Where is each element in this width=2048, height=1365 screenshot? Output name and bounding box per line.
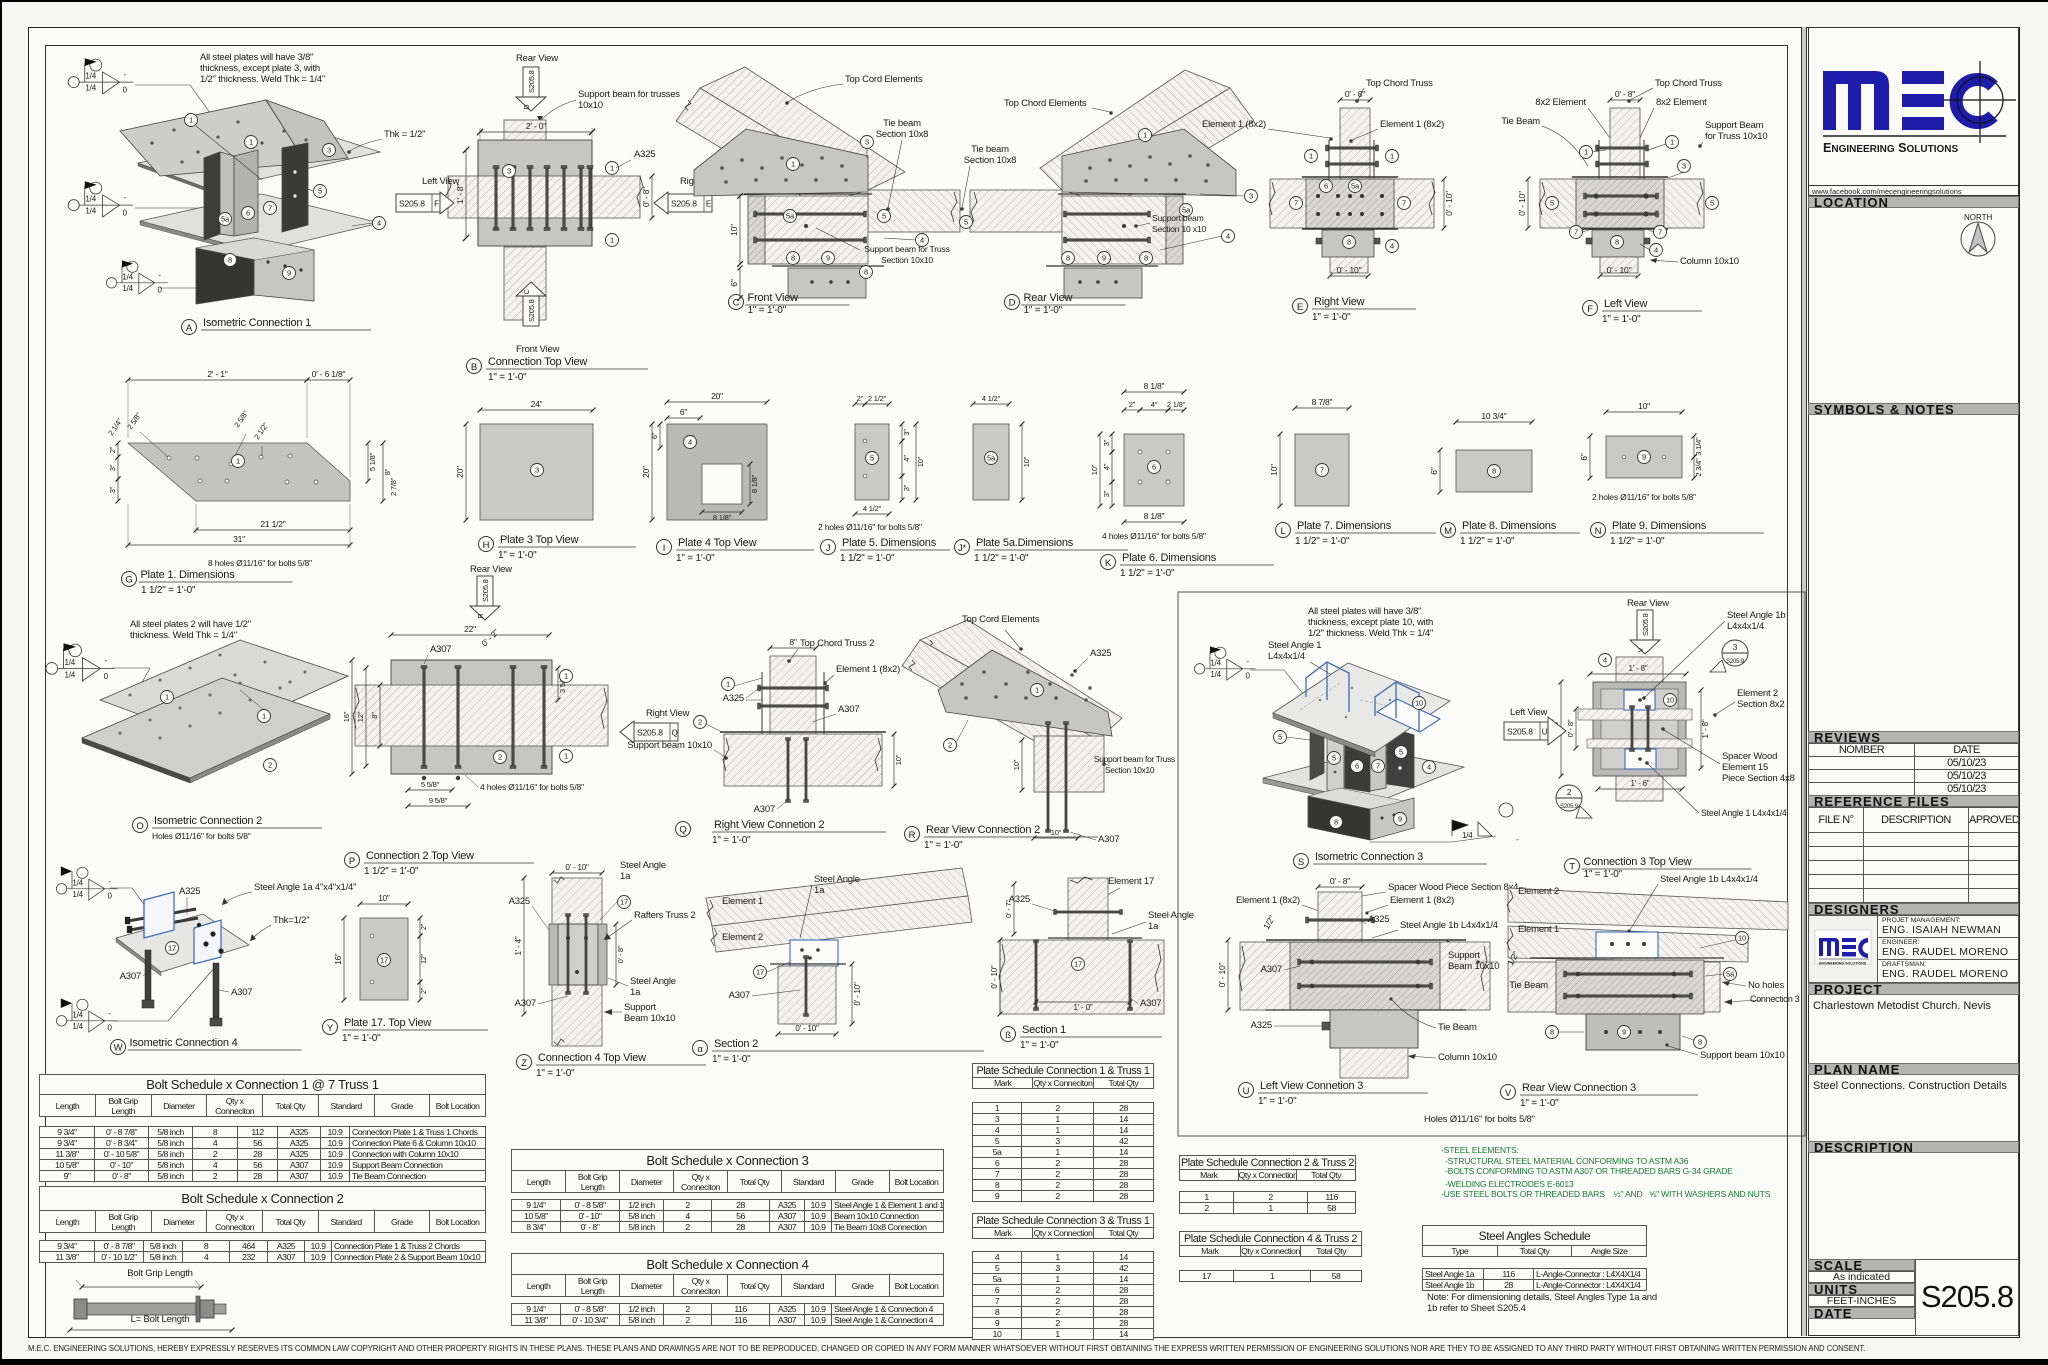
svg-text:2' - 0": 2' - 0" xyxy=(526,121,546,131)
svg-text:8 7/8": 8 7/8" xyxy=(1312,397,1333,407)
svg-text:3: 3 xyxy=(1682,162,1686,171)
svg-text:9 5/8": 9 5/8" xyxy=(429,796,448,805)
svg-text:1/4: 1/4 xyxy=(65,670,76,679)
svg-text:Section 8x2: Section 8x2 xyxy=(1737,699,1784,710)
svg-text:Front View: Front View xyxy=(516,344,560,355)
svg-text:L: L xyxy=(1280,526,1285,537)
svg-text:2 holes Ø11/16" for bolts 5/8": 2 holes Ø11/16" for bolts 5/8" xyxy=(1592,492,1696,502)
svg-text:Top Chord Truss 2: Top Chord Truss 2 xyxy=(800,638,874,649)
svg-text:1" = 1'-0": 1" = 1'-0" xyxy=(536,1068,575,1079)
svg-text:C: C xyxy=(733,298,740,309)
svg-text:8: 8 xyxy=(1615,238,1619,247)
svg-text:S205.8: S205.8 xyxy=(1507,727,1533,737)
svg-text:Steel Angle 1b L4x4x1/4: Steel Angle 1b L4x4x1/4 xyxy=(1400,920,1498,931)
svg-text:Rear View: Rear View xyxy=(470,564,512,575)
svg-text:8": 8" xyxy=(383,468,392,475)
svg-text:S205.8: S205.8 xyxy=(481,579,490,602)
svg-text:F: F xyxy=(434,200,439,209)
svg-text:5a: 5a xyxy=(1351,182,1360,191)
svg-text:Support beam: Support beam xyxy=(1152,213,1204,223)
svg-text:Spacer Wood Piece Section 8x4: Spacer Wood Piece Section 8x4 xyxy=(1388,882,1518,893)
svg-text:2 1/2": 2 1/2" xyxy=(868,394,887,403)
svg-text:V: V xyxy=(1505,1088,1512,1099)
svg-text:0' - 8": 0' - 8" xyxy=(1330,876,1350,886)
svg-text:1: 1 xyxy=(1309,152,1313,161)
svg-text:8: 8 xyxy=(1066,254,1070,263)
svg-text:6: 6 xyxy=(1152,463,1156,472)
svg-text:5: 5 xyxy=(1278,733,1282,742)
svg-text:1/4: 1/4 xyxy=(122,284,133,293)
svg-text:31": 31" xyxy=(233,534,245,544)
svg-text:Tie Beam: Tie Beam xyxy=(1501,116,1540,127)
svg-text:V: V xyxy=(1638,647,1645,652)
svg-text:L4x4x1/4: L4x4x1/4 xyxy=(1268,651,1305,662)
svg-text:17: 17 xyxy=(756,968,764,977)
svg-text:N: N xyxy=(1595,526,1602,537)
svg-text:A325: A325 xyxy=(1251,1020,1272,1031)
svg-text:1: 1 xyxy=(726,680,730,689)
svg-text:A307: A307 xyxy=(729,990,750,1001)
svg-text:E: E xyxy=(706,200,711,209)
svg-text:2": 2" xyxy=(421,923,428,930)
svg-text:0' - 10": 0' - 10" xyxy=(795,1024,819,1033)
svg-text:Connection 3: Connection 3 xyxy=(1750,994,1800,1004)
svg-text:A307: A307 xyxy=(1098,834,1119,845)
svg-text:8x2 Element: 8x2 Element xyxy=(1656,97,1707,108)
svg-text:6: 6 xyxy=(246,209,250,218)
svg-text:6": 6" xyxy=(1429,467,1439,475)
svg-text:7: 7 xyxy=(1376,762,1380,771)
svg-text:0: 0 xyxy=(107,1023,112,1032)
svg-text:1: 1 xyxy=(262,712,266,721)
svg-text:3: 3 xyxy=(327,146,331,155)
svg-text:9: 9 xyxy=(1102,254,1106,263)
svg-text:A307: A307 xyxy=(1140,998,1161,1009)
svg-text:4: 4 xyxy=(1654,246,1658,255)
svg-text:1: 1 xyxy=(236,457,240,466)
svg-text:Section 10x8: Section 10x8 xyxy=(876,129,929,140)
svg-text:2 1/4": 2 1/4" xyxy=(106,417,124,437)
svg-text:0' - 10": 0' - 10" xyxy=(1217,962,1227,987)
svg-text:8: 8 xyxy=(791,254,795,263)
svg-text:3: 3 xyxy=(1733,643,1738,652)
svg-text:Isometric Connection 3: Isometric Connection 3 xyxy=(1315,851,1423,863)
svg-text:5: 5 xyxy=(964,218,968,227)
svg-text:0' - 10": 0' - 10" xyxy=(1444,191,1454,216)
svg-text:1" = 1'-0": 1" = 1'-0" xyxy=(342,1033,381,1044)
svg-text:Top Chord Truss: Top Chord Truss xyxy=(1655,78,1722,89)
svg-text:S205.9: S205.9 xyxy=(1726,659,1745,665)
svg-text:1/4: 1/4 xyxy=(1210,670,1221,679)
svg-text:20": 20" xyxy=(711,391,723,401)
svg-text:Top Chord Truss: Top Chord Truss xyxy=(1366,78,1433,89)
svg-text:2": 2" xyxy=(421,987,428,994)
svg-text:Thk=1/2": Thk=1/2" xyxy=(273,915,309,926)
svg-text:1" = 1'-0": 1" = 1'-0" xyxy=(924,840,963,851)
svg-text:0' - 8": 0' - 8" xyxy=(641,187,651,207)
svg-text:21 1/2": 21 1/2" xyxy=(260,519,285,529)
svg-text:Plate 17. Top View: Plate 17. Top View xyxy=(344,1017,431,1029)
svg-text:3": 3" xyxy=(902,429,911,436)
svg-text:A307: A307 xyxy=(120,971,141,982)
svg-text:1 1/2" = 1'-0": 1 1/2" = 1'-0" xyxy=(1295,536,1350,547)
svg-text:2": 2" xyxy=(108,446,117,453)
svg-text:10": 10" xyxy=(1022,456,1031,467)
svg-text:1: 1 xyxy=(564,752,568,761)
svg-text:U: U xyxy=(1243,1086,1250,1097)
svg-text:1" = 1'-0": 1" = 1'-0" xyxy=(498,550,537,561)
svg-text:7: 7 xyxy=(1658,228,1662,237)
svg-text:16": 16" xyxy=(342,711,351,722)
svg-text:L= Bolt Length: L= Bolt Length xyxy=(131,1314,190,1325)
svg-text:8: 8 xyxy=(1347,238,1351,247)
svg-text:3": 3" xyxy=(108,486,117,493)
svg-text:10": 10" xyxy=(1012,759,1021,770)
svg-text:4: 4 xyxy=(377,219,381,228)
svg-text:2' - 1": 2' - 1" xyxy=(207,369,227,379)
svg-text:Support beam for trusses: Support beam for trusses xyxy=(578,89,680,100)
svg-text:10: 10 xyxy=(1666,696,1674,705)
svg-text:4: 4 xyxy=(1427,763,1431,772)
svg-text:α: α xyxy=(697,1044,703,1055)
svg-text:3 1/4": 3 1/4" xyxy=(1694,437,1703,456)
svg-text:S205.8: S205.8 xyxy=(527,299,536,322)
svg-text:5a: 5a xyxy=(987,454,996,463)
svg-text:7: 7 xyxy=(1402,199,1406,208)
svg-text:9: 9 xyxy=(287,269,291,278)
svg-text:Steel Angle: Steel Angle xyxy=(1148,910,1194,921)
svg-text:Element 1 (8x2): Element 1 (8x2) xyxy=(836,664,900,675)
svg-text:Section 10 x10: Section 10 x10 xyxy=(1152,224,1206,234)
svg-text:R: R xyxy=(478,613,485,618)
svg-text:17: 17 xyxy=(168,944,176,953)
svg-text:thickness, except plate 3, wit: thickness, except plate 3, with xyxy=(200,63,320,74)
svg-text:Right View Connetion 2: Right View Connetion 2 xyxy=(714,819,824,831)
svg-text:4 1/2": 4 1/2" xyxy=(982,394,1001,403)
svg-text:10": 10" xyxy=(894,754,903,765)
svg-text:A307: A307 xyxy=(754,804,775,815)
svg-text:1a: 1a xyxy=(630,987,641,998)
svg-text:Holes Ø11/16" for bolts 5/8": Holes Ø11/16" for bolts 5/8" xyxy=(1424,1114,1535,1125)
svg-text:5: 5 xyxy=(870,454,874,463)
svg-text:Support beam for Truss: Support beam for Truss xyxy=(864,244,949,254)
svg-text:8: 8 xyxy=(1334,818,1338,827)
svg-text:1" = 1'-0": 1" = 1'-0" xyxy=(1602,314,1641,325)
svg-text:All steel plates will have 3/8: All steel plates will have 3/8" xyxy=(200,52,313,63)
svg-text:5: 5 xyxy=(1332,754,1336,763)
svg-text:10: 10 xyxy=(1415,699,1423,708)
svg-text:Beam 10x10: Beam 10x10 xyxy=(1448,961,1499,972)
svg-text:1' - 8": 1' - 8" xyxy=(1629,664,1648,673)
svg-text:Rear View: Rear View xyxy=(1024,292,1073,304)
svg-text:Connection 4 Top View: Connection 4 Top View xyxy=(538,1052,646,1064)
svg-text:D: D xyxy=(524,104,531,109)
svg-text:C: C xyxy=(524,289,531,294)
svg-text:6: 6 xyxy=(1355,762,1359,771)
svg-text:0' - 10": 0' - 10" xyxy=(565,863,589,872)
svg-text:S205.8: S205.8 xyxy=(527,70,536,93)
svg-text:1/4: 1/4 xyxy=(72,879,83,888)
svg-text:0: 0 xyxy=(123,85,128,94)
svg-text:Beam 10x10: Beam 10x10 xyxy=(624,1013,675,1024)
svg-text:16": 16" xyxy=(334,953,343,964)
svg-text:10": 10" xyxy=(1269,464,1279,476)
svg-text:4: 4 xyxy=(1226,232,1230,241)
svg-text:5a: 5a xyxy=(1726,970,1735,979)
svg-text:1" = 1'-0": 1" = 1'-0" xyxy=(712,1054,751,1065)
svg-text:Connection 2 Top View: Connection 2 Top View xyxy=(366,850,474,862)
svg-text:Element 2: Element 2 xyxy=(722,932,763,943)
svg-text:2": 2" xyxy=(857,394,864,403)
svg-text:0' - 8": 0' - 8" xyxy=(1615,89,1635,99)
svg-text:5a: 5a xyxy=(221,215,230,224)
svg-text:Tie Beam: Tie Beam xyxy=(1438,1022,1477,1033)
svg-text:3: 3 xyxy=(1249,192,1253,201)
svg-text:A325: A325 xyxy=(1090,648,1111,659)
svg-text:1 1/2" = 1'-0": 1 1/2" = 1'-0" xyxy=(840,553,895,564)
svg-text:10": 10" xyxy=(1638,401,1650,411)
svg-text:S205.8: S205.8 xyxy=(1641,613,1650,636)
svg-text:Section 10x10: Section 10x10 xyxy=(881,255,933,265)
svg-text:Connection Top View: Connection Top View xyxy=(488,356,587,368)
svg-text:A325: A325 xyxy=(723,693,744,704)
svg-text:Element 1 (8x2): Element 1 (8x2) xyxy=(1390,895,1454,906)
svg-text:4": 4" xyxy=(1151,400,1158,409)
svg-text:0: 0 xyxy=(157,285,162,294)
svg-text:8": 8" xyxy=(370,712,379,719)
svg-text:0' - 8": 0' - 8" xyxy=(1566,719,1575,737)
svg-text:Plate 6. Dimensions: Plate 6. Dimensions xyxy=(1122,552,1217,564)
svg-text:A307: A307 xyxy=(231,987,252,998)
svg-text:-: - xyxy=(105,656,108,665)
svg-text:2: 2 xyxy=(268,761,272,770)
svg-text:Element 1 (8x2): Element 1 (8x2) xyxy=(1380,119,1444,130)
svg-text:4: 4 xyxy=(688,438,692,447)
svg-text:Top Cord Elements: Top Cord Elements xyxy=(962,614,1040,625)
svg-text:7: 7 xyxy=(1294,199,1298,208)
svg-text:Element 1: Element 1 xyxy=(1518,924,1559,935)
svg-text:1/4: 1/4 xyxy=(85,195,96,204)
svg-text:8: 8 xyxy=(1698,1038,1702,1047)
svg-text:8 1/8": 8 1/8" xyxy=(713,513,732,522)
svg-text:Front View: Front View xyxy=(748,292,799,304)
svg-text:9: 9 xyxy=(1398,815,1402,824)
svg-text:Support beam for Truss: Support beam for Truss xyxy=(1094,754,1175,764)
svg-text:10": 10" xyxy=(916,456,925,467)
svg-text:1/4: 1/4 xyxy=(72,890,83,899)
svg-text:1/4: 1/4 xyxy=(65,658,76,667)
svg-text:8: 8 xyxy=(864,268,868,277)
svg-text:O: O xyxy=(136,821,143,832)
svg-text:S205.9: S205.9 xyxy=(1560,804,1579,810)
svg-text:J*: J* xyxy=(958,543,967,554)
svg-text:1: 1 xyxy=(1390,152,1394,161)
svg-text:1: 1 xyxy=(564,672,568,681)
svg-text:8 1/8": 8 1/8" xyxy=(1144,381,1165,391)
svg-text:1/4: 1/4 xyxy=(1462,831,1473,840)
svg-text:6: 6 xyxy=(1324,182,1328,191)
svg-text:1a: 1a xyxy=(620,871,631,882)
svg-text:E: E xyxy=(1297,302,1303,313)
svg-text:No holes: No holes xyxy=(1748,980,1784,991)
svg-text:-: - xyxy=(158,271,161,280)
svg-text:8x2 Element: 8x2 Element xyxy=(1535,97,1586,108)
svg-text:1: 1 xyxy=(791,160,795,169)
svg-text:Tie Beam: Tie Beam xyxy=(1509,980,1548,991)
svg-text:1/4: 1/4 xyxy=(85,72,96,81)
svg-text:1' - 0": 1' - 0" xyxy=(1074,1003,1093,1012)
svg-text:1: 1 xyxy=(1670,138,1674,147)
svg-text:Thk = 1/2": Thk = 1/2" xyxy=(384,129,425,140)
svg-text:10": 10" xyxy=(729,224,739,236)
svg-text:Top Cord Elements: Top Cord Elements xyxy=(845,74,923,85)
svg-text:8 1/8": 8 1/8" xyxy=(1144,511,1165,521)
svg-text:0' - 10": 0' - 10" xyxy=(1337,265,1362,275)
svg-text:0' - 10": 0' - 10" xyxy=(1607,265,1632,275)
svg-text:6": 6" xyxy=(650,432,659,439)
svg-text:3: 3 xyxy=(507,167,511,176)
svg-text:Steel Angle: Steel Angle xyxy=(620,860,666,871)
svg-text:1/2" thickness. Weld Thk = 1/4: 1/2" thickness. Weld Thk = 1/4" xyxy=(200,74,325,85)
svg-text:All steel plates will have 3/8: All steel plates will have 3/8" xyxy=(1308,606,1421,617)
svg-text:17: 17 xyxy=(1074,960,1082,969)
svg-text:20": 20" xyxy=(641,466,651,478)
svg-text:0: 0 xyxy=(104,672,109,681)
svg-text:1' - 4": 1' - 4" xyxy=(514,936,523,955)
svg-text:Column 10x10: Column 10x10 xyxy=(1438,1052,1497,1063)
svg-text:Support: Support xyxy=(1448,950,1480,961)
svg-text:12": 12" xyxy=(421,953,428,963)
svg-text:1" = 1'-0": 1" = 1'-0" xyxy=(1258,1096,1297,1107)
svg-text:Element 1 (8x2): Element 1 (8x2) xyxy=(1236,895,1300,906)
svg-text:W: W xyxy=(114,1043,123,1054)
svg-text:1" = 1'-0": 1" = 1'-0" xyxy=(1520,1098,1559,1109)
svg-text:F: F xyxy=(1587,304,1593,315)
svg-text:9: 9 xyxy=(1642,453,1646,462)
svg-text:S205.8: S205.8 xyxy=(671,199,697,209)
svg-text:2 5/8": 2 5/8" xyxy=(232,409,250,429)
svg-text:2: 2 xyxy=(698,718,702,727)
svg-text:Y: Y xyxy=(327,1023,334,1034)
svg-text:12": 12" xyxy=(356,711,365,722)
svg-text:thickness. Weld Thk = 1/4": thickness. Weld Thk = 1/4" xyxy=(130,630,237,641)
svg-text:Section 10x10: Section 10x10 xyxy=(1105,765,1155,775)
svg-text:1a: 1a xyxy=(1148,921,1159,932)
svg-text:10 3/4": 10 3/4" xyxy=(1481,411,1506,421)
svg-text:0' - 10": 0' - 10" xyxy=(1517,191,1527,216)
svg-text:A325: A325 xyxy=(179,886,200,897)
svg-text:1a: 1a xyxy=(814,885,825,896)
svg-text:Support beam 10x10: Support beam 10x10 xyxy=(1700,1050,1785,1061)
svg-text:Plate 1. Dimensions: Plate 1. Dimensions xyxy=(141,569,236,581)
svg-text:-: - xyxy=(123,193,126,202)
svg-text:1 1/2" = 1'-0": 1 1/2" = 1'-0" xyxy=(974,553,1029,564)
svg-text:I: I xyxy=(663,543,665,554)
svg-text:2 3/4": 2 3/4" xyxy=(1694,458,1703,477)
svg-text:4": 4" xyxy=(1102,463,1111,470)
svg-text:4: 4 xyxy=(1603,656,1607,665)
svg-text:Plate 8. Dimensions: Plate 8. Dimensions xyxy=(1462,520,1557,532)
svg-text:0' - 10": 0' - 10" xyxy=(990,965,999,989)
svg-text:1 1/2" = 1'-0": 1 1/2" = 1'-0" xyxy=(364,866,419,877)
svg-text:5 5/8": 5 5/8" xyxy=(421,780,440,789)
svg-text:1: 1 xyxy=(610,164,614,173)
svg-text:1' - 6": 1' - 6" xyxy=(1631,779,1650,788)
svg-text:1/4: 1/4 xyxy=(85,84,96,93)
svg-text:3": 3" xyxy=(902,484,911,491)
svg-text:1: 1 xyxy=(165,693,169,702)
svg-text:8: 8 xyxy=(1492,467,1496,476)
svg-text:Left View: Left View xyxy=(1604,298,1648,310)
svg-text:A307: A307 xyxy=(1261,964,1282,975)
svg-text:Steel Angle 1 L4x4x1/4: Steel Angle 1 L4x4x1/4 xyxy=(1701,808,1787,818)
svg-text:A: A xyxy=(186,323,193,334)
svg-text:1" = 1'-0": 1" = 1'-0" xyxy=(1020,1040,1059,1051)
svg-text:Steel Angle: Steel Angle xyxy=(630,976,676,987)
svg-text:9: 9 xyxy=(1622,1028,1626,1037)
svg-text:8": 8" xyxy=(789,637,797,647)
svg-text:Element 1: Element 1 xyxy=(722,896,763,907)
svg-text:Left View: Left View xyxy=(1510,707,1547,718)
svg-text:24": 24" xyxy=(531,399,543,409)
svg-text:2 1/8": 2 1/8" xyxy=(1167,400,1186,409)
svg-text:A325: A325 xyxy=(634,149,655,160)
svg-text:A307: A307 xyxy=(515,998,536,1009)
svg-text:0' - 6 1/8": 0' - 6 1/8" xyxy=(312,369,346,379)
svg-text:0: 0 xyxy=(123,208,128,217)
svg-text:6": 6" xyxy=(680,407,688,417)
svg-text:Support Beam: Support Beam xyxy=(1705,120,1764,131)
svg-text:thickness, except plate 10, wi: thickness, except plate 10, with xyxy=(1308,617,1433,628)
svg-text:7: 7 xyxy=(1574,228,1578,237)
svg-text:Isometric Connection 4: Isometric Connection 4 xyxy=(130,1037,238,1049)
svg-text:0' - 2": 0' - 2" xyxy=(479,627,501,649)
svg-text:8: 8 xyxy=(228,256,232,265)
svg-text:1" = 1'-0": 1" = 1'-0" xyxy=(712,835,751,846)
svg-text:U: U xyxy=(1542,728,1548,737)
svg-text:Section 10x8: Section 10x8 xyxy=(964,155,1017,166)
svg-text:Steel Angle 1b L4x4x1/4: Steel Angle 1b L4x4x1/4 xyxy=(1660,874,1758,885)
svg-text:17: 17 xyxy=(380,956,388,965)
svg-text:0' - 8": 0' - 8" xyxy=(1345,89,1365,99)
svg-text:H: H xyxy=(483,540,490,551)
svg-text:Element 17: Element 17 xyxy=(1108,876,1154,887)
svg-text:Plate 4 Top View: Plate 4 Top View xyxy=(678,537,757,549)
svg-text:17: 17 xyxy=(620,898,628,907)
svg-text:7: 7 xyxy=(1320,466,1324,475)
svg-text:Rafters Truss 2: Rafters Truss 2 xyxy=(634,910,695,921)
svg-text:10": 10" xyxy=(378,894,389,903)
svg-text:Support: Support xyxy=(624,1002,656,1013)
svg-text:8 1/8": 8 1/8" xyxy=(750,474,759,493)
svg-text:Q: Q xyxy=(679,825,686,836)
svg-text:1" = 1'-0": 1" = 1'-0" xyxy=(1584,869,1623,880)
svg-text:-: - xyxy=(108,877,111,886)
svg-text:S: S xyxy=(1298,857,1304,868)
svg-text:1/4: 1/4 xyxy=(122,273,133,282)
svg-text:Isometric Connection 2: Isometric Connection 2 xyxy=(154,815,262,827)
svg-text:Right View: Right View xyxy=(1314,296,1365,308)
svg-text:8 holes Ø11/16" for bolts 5/8": 8 holes Ø11/16" for bolts 5/8" xyxy=(208,558,312,568)
svg-text:1/4: 1/4 xyxy=(85,207,96,216)
svg-text:2": 2" xyxy=(1129,400,1136,409)
svg-text:10: 10 xyxy=(1738,934,1746,943)
svg-text:P: P xyxy=(349,856,355,867)
svg-text:9: 9 xyxy=(826,254,830,263)
svg-text:Rear View: Rear View xyxy=(516,53,558,64)
svg-text:Element 2: Element 2 xyxy=(1737,688,1778,699)
svg-text:Top Chord Elements: Top Chord Elements xyxy=(1004,98,1087,109)
